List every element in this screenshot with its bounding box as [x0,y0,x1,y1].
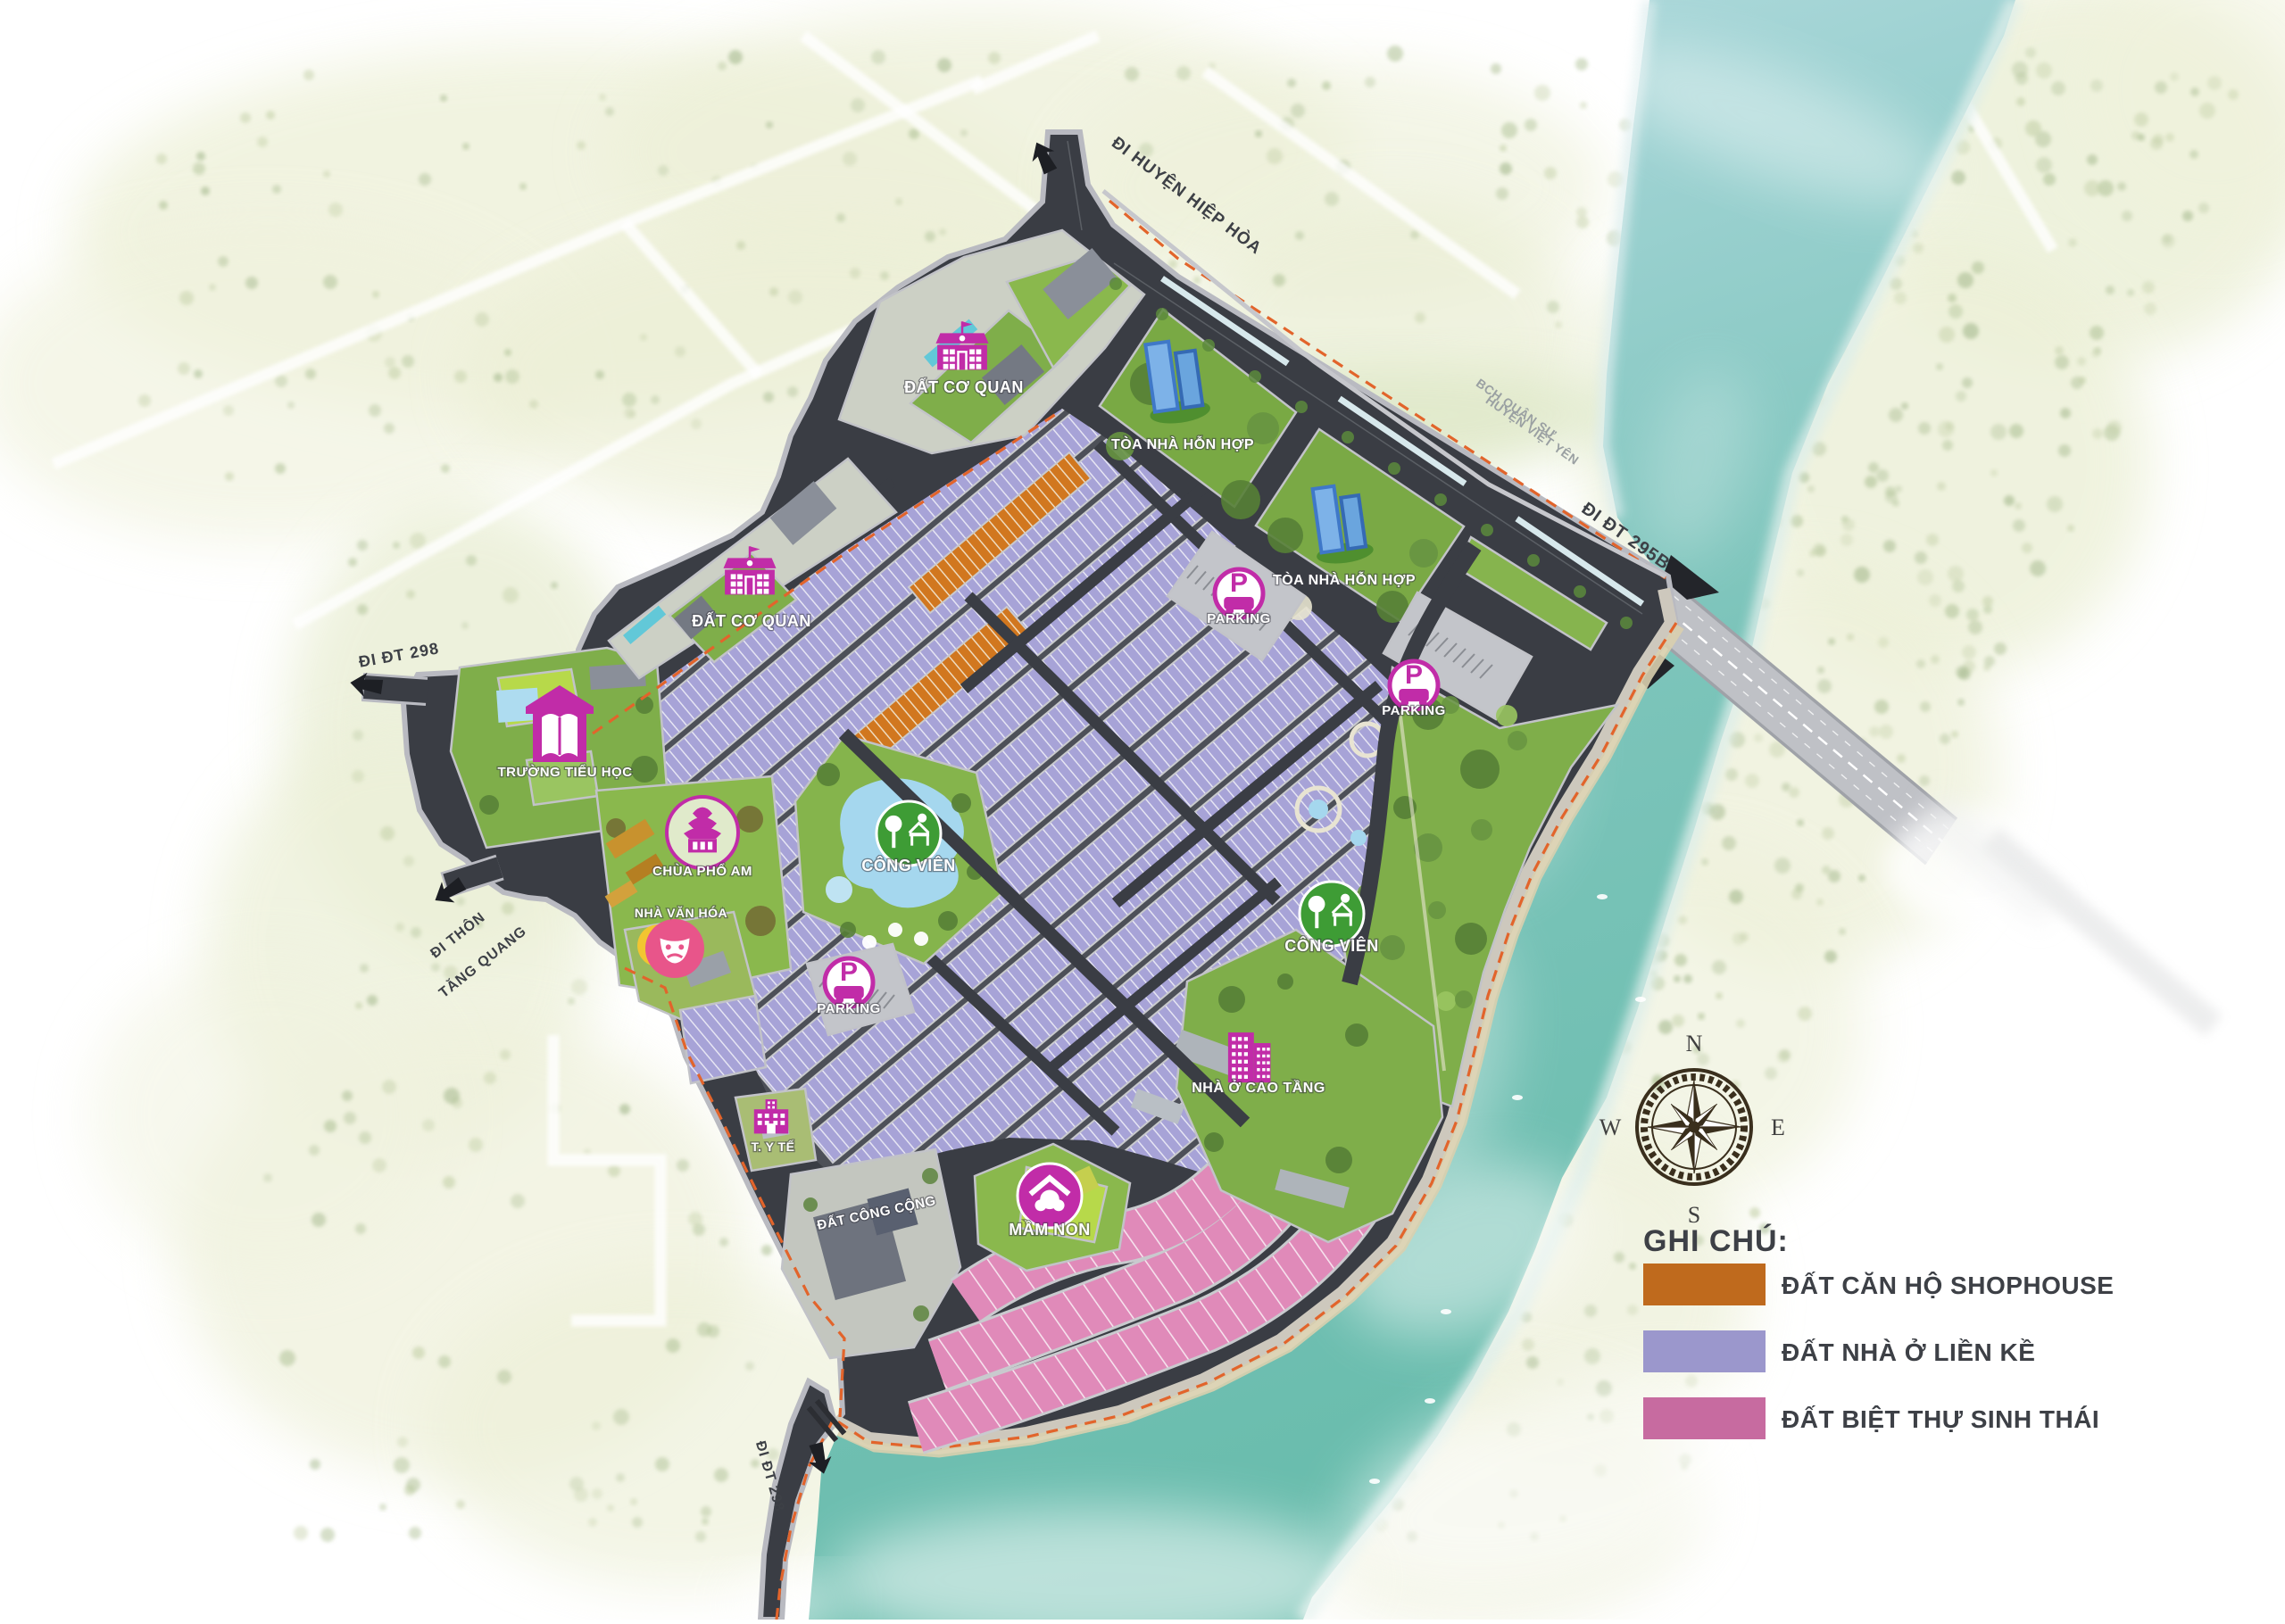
svg-text:NHÀ VĂN HÓA: NHÀ VĂN HÓA [635,905,727,920]
svg-text:PARKING: PARKING [1207,611,1271,626]
svg-text:PARKING: PARKING [817,1001,881,1016]
svg-text:N: N [1686,1031,1703,1056]
svg-text:NHÀ Ở CAO TẦNG: NHÀ Ở CAO TẦNG [1192,1079,1325,1096]
svg-text:TÒA NHÀ HỖN HỢP: TÒA NHÀ HỖN HỢP [1273,571,1416,588]
svg-text:TÒA NHÀ HỖN HỢP: TÒA NHÀ HỖN HỢP [1111,435,1254,452]
svg-text:T. Y TẾ: T. Y TẾ [752,1139,795,1154]
svg-text:PARKING: PARKING [1382,703,1446,718]
svg-text:P: P [1405,660,1423,690]
svg-text:TRƯỜNG TIỂU HỌC: TRƯỜNG TIỂU HỌC [497,764,632,780]
svg-text:W: W [1599,1114,1622,1140]
svg-text:GHI CHÚ:: GHI CHÚ: [1643,1224,1789,1258]
svg-text:P: P [840,957,858,987]
svg-text:P: P [1230,568,1248,598]
svg-text:CÔNG VIÊN: CÔNG VIÊN [1284,936,1379,955]
svg-text:ĐẤT NHÀ Ở LIỀN KỀ: ĐẤT NHÀ Ở LIỀN KỀ [1782,1338,2035,1366]
svg-text:ĐẤT CƠ QUAN: ĐẤT CƠ QUAN [692,611,811,630]
svg-text:E: E [1771,1114,1785,1140]
svg-text:ĐẤT BIỆT THỰ SINH THÁI: ĐẤT BIỆT THỰ SINH THÁI [1782,1405,2099,1433]
svg-text:ĐẤT CƠ QUAN: ĐẤT CƠ QUAN [904,377,1024,396]
svg-text:ĐẤT CĂN HỘ SHOPHOUSE: ĐẤT CĂN HỘ SHOPHOUSE [1782,1271,2114,1299]
svg-text:CÔNG VIÊN: CÔNG VIÊN [861,856,956,874]
svg-text:MẦM NON: MẦM NON [1009,1220,1091,1239]
svg-text:CHÙA PHỔ AM: CHÙA PHỔ AM [652,863,752,879]
